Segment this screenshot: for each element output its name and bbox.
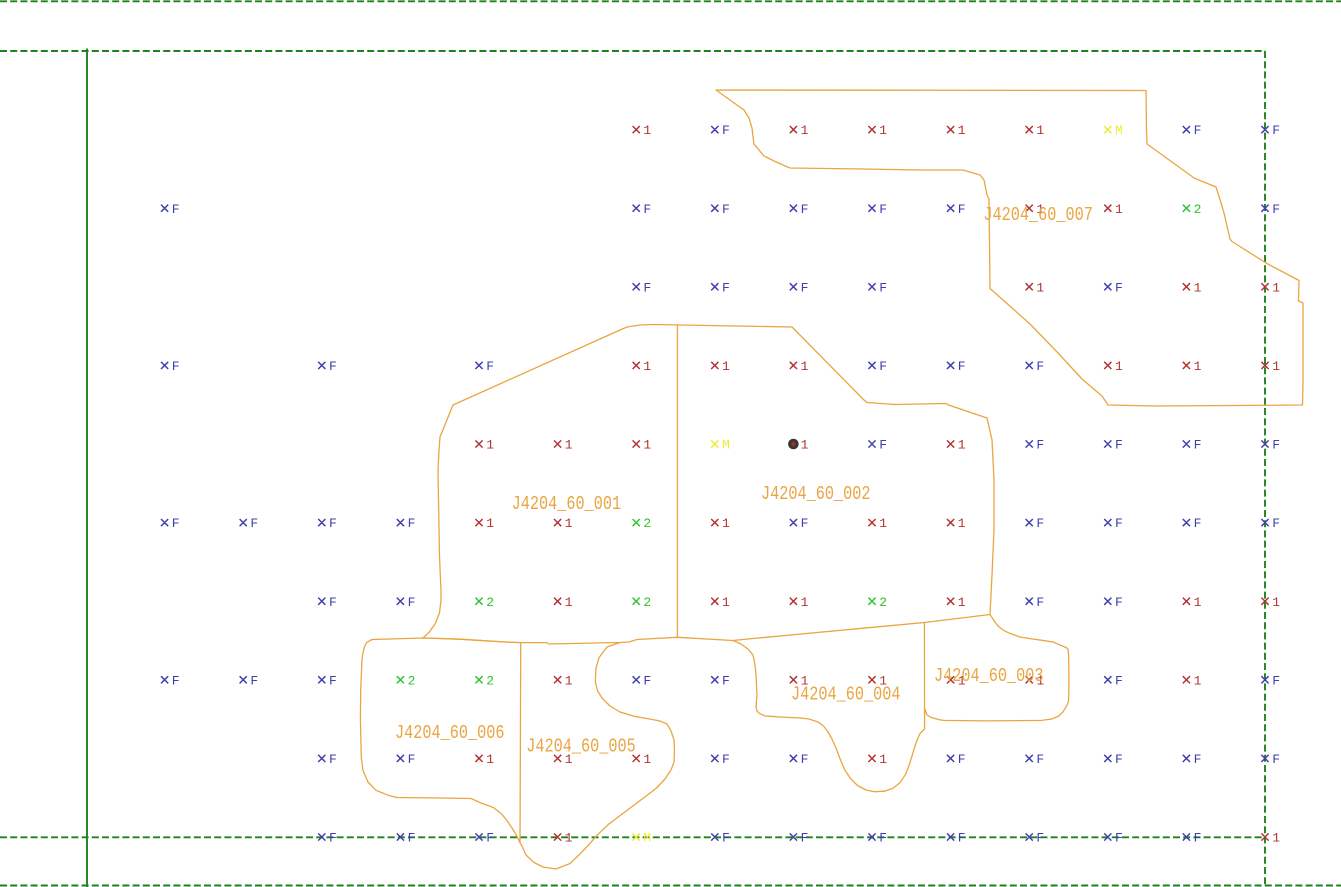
svg-text:F: F	[329, 673, 337, 688]
svg-text:F: F	[958, 202, 966, 217]
svg-text:1: 1	[565, 438, 573, 453]
svg-text:J4204_60_007: J4204_60_007	[983, 205, 1093, 227]
svg-text:F: F	[1115, 280, 1123, 295]
svg-text:2: 2	[643, 516, 651, 531]
svg-text:F: F	[722, 673, 730, 688]
svg-text:F: F	[250, 673, 258, 688]
svg-text:1: 1	[643, 123, 651, 138]
svg-text:F: F	[643, 202, 651, 217]
svg-text:1: 1	[643, 359, 651, 374]
svg-text:1: 1	[958, 595, 966, 610]
svg-text:1: 1	[722, 595, 730, 610]
svg-text:F: F	[722, 123, 730, 138]
svg-text:F: F	[1272, 516, 1280, 531]
svg-text:1: 1	[801, 438, 809, 453]
svg-text:F: F	[1115, 831, 1123, 846]
svg-text:1: 1	[1036, 123, 1044, 138]
svg-text:F: F	[172, 673, 180, 688]
svg-text:1: 1	[486, 516, 494, 531]
svg-text:1: 1	[801, 359, 809, 374]
svg-text:J4204_60_002: J4204_60_002	[761, 484, 871, 506]
svg-text:F: F	[1036, 831, 1044, 846]
svg-text:1: 1	[1115, 202, 1123, 217]
svg-text:F: F	[329, 516, 337, 531]
svg-text:1: 1	[722, 359, 730, 374]
svg-text:1: 1	[1115, 359, 1123, 374]
svg-text:1: 1	[1272, 595, 1280, 610]
svg-text:F: F	[1115, 752, 1123, 767]
svg-text:M: M	[722, 438, 730, 453]
svg-text:1: 1	[722, 516, 730, 531]
svg-text:F: F	[643, 280, 651, 295]
svg-text:1: 1	[958, 516, 966, 531]
svg-text:F: F	[408, 595, 416, 610]
svg-text:J4204_60_004: J4204_60_004	[791, 684, 901, 706]
svg-text:F: F	[879, 280, 887, 295]
svg-text:F: F	[958, 831, 966, 846]
svg-text:F: F	[1115, 595, 1123, 610]
svg-text:F: F	[879, 831, 887, 846]
svg-text:F: F	[722, 752, 730, 767]
svg-text:1: 1	[801, 595, 809, 610]
svg-text:F: F	[250, 516, 258, 531]
svg-text:F: F	[643, 673, 651, 688]
svg-text:F: F	[722, 202, 730, 217]
svg-text:F: F	[1036, 752, 1044, 767]
svg-text:J4204_60_001: J4204_60_001	[512, 494, 621, 516]
svg-text:F: F	[1272, 752, 1280, 767]
svg-text:2: 2	[879, 595, 887, 610]
svg-text:1: 1	[801, 123, 809, 138]
svg-text:1: 1	[565, 673, 573, 688]
svg-text:F: F	[1272, 123, 1280, 138]
svg-text:1: 1	[1272, 359, 1280, 374]
svg-text:F: F	[1194, 123, 1202, 138]
svg-text:F: F	[879, 202, 887, 217]
svg-text:2: 2	[643, 595, 651, 610]
svg-text:F: F	[801, 280, 809, 295]
svg-text:2: 2	[408, 673, 416, 688]
svg-text:F: F	[408, 752, 416, 767]
svg-text:F: F	[172, 359, 180, 374]
svg-text:J4204_60_006: J4204_60_006	[395, 723, 505, 745]
svg-text:F: F	[1036, 359, 1044, 374]
svg-text:J4204_60_003: J4204_60_003	[934, 666, 1044, 688]
svg-text:1: 1	[486, 438, 494, 453]
svg-text:1: 1	[1194, 280, 1202, 295]
svg-text:F: F	[1036, 595, 1044, 610]
svg-text:F: F	[879, 438, 887, 453]
svg-text:1: 1	[565, 831, 573, 846]
svg-text:1: 1	[1036, 280, 1044, 295]
svg-text:1: 1	[1194, 673, 1202, 688]
svg-text:1: 1	[565, 516, 573, 531]
svg-text:M: M	[643, 831, 651, 846]
svg-text:F: F	[329, 595, 337, 610]
svg-text:F: F	[801, 202, 809, 217]
svg-text:2: 2	[486, 673, 494, 688]
svg-text:F: F	[958, 359, 966, 374]
svg-text:F: F	[1272, 202, 1280, 217]
svg-text:F: F	[172, 516, 180, 531]
svg-text:F: F	[329, 831, 337, 846]
svg-text:F: F	[958, 752, 966, 767]
svg-text:F: F	[1272, 673, 1280, 688]
svg-text:F: F	[486, 359, 494, 374]
svg-text:F: F	[801, 831, 809, 846]
svg-text:F: F	[1194, 831, 1202, 846]
svg-text:1: 1	[879, 516, 887, 531]
svg-text:F: F	[1194, 752, 1202, 767]
svg-text:1: 1	[1272, 280, 1280, 295]
svg-text:2: 2	[486, 595, 494, 610]
svg-text:1: 1	[1272, 831, 1280, 846]
svg-text:F: F	[1115, 673, 1123, 688]
svg-text:F: F	[1194, 516, 1202, 531]
svg-text:F: F	[329, 752, 337, 767]
svg-text:1: 1	[643, 752, 651, 767]
svg-text:F: F	[722, 280, 730, 295]
svg-text:1: 1	[879, 123, 887, 138]
svg-text:F: F	[486, 831, 494, 846]
svg-text:F: F	[329, 359, 337, 374]
svg-text:F: F	[879, 359, 887, 374]
svg-text:F: F	[722, 831, 730, 846]
svg-text:2: 2	[1194, 202, 1202, 217]
svg-text:F: F	[1272, 438, 1280, 453]
svg-text:1: 1	[879, 752, 887, 767]
svg-text:F: F	[172, 202, 180, 217]
svg-text:1: 1	[958, 123, 966, 138]
svg-text:F: F	[408, 516, 416, 531]
svg-text:1: 1	[1194, 359, 1202, 374]
svg-text:F: F	[1115, 438, 1123, 453]
svg-text:M: M	[1115, 123, 1123, 138]
svg-text:1: 1	[643, 438, 651, 453]
svg-text:F: F	[801, 516, 809, 531]
svg-text:F: F	[1115, 516, 1123, 531]
svg-text:F: F	[1036, 516, 1044, 531]
svg-text:F: F	[408, 831, 416, 846]
svg-text:F: F	[1036, 438, 1044, 453]
svg-text:1: 1	[1194, 595, 1202, 610]
svg-text:1: 1	[565, 595, 573, 610]
svg-text:F: F	[1194, 438, 1202, 453]
svg-text:1: 1	[958, 438, 966, 453]
svg-text:1: 1	[486, 752, 494, 767]
svg-text:F: F	[801, 752, 809, 767]
svg-text:J4204_60_005: J4204_60_005	[526, 736, 636, 758]
